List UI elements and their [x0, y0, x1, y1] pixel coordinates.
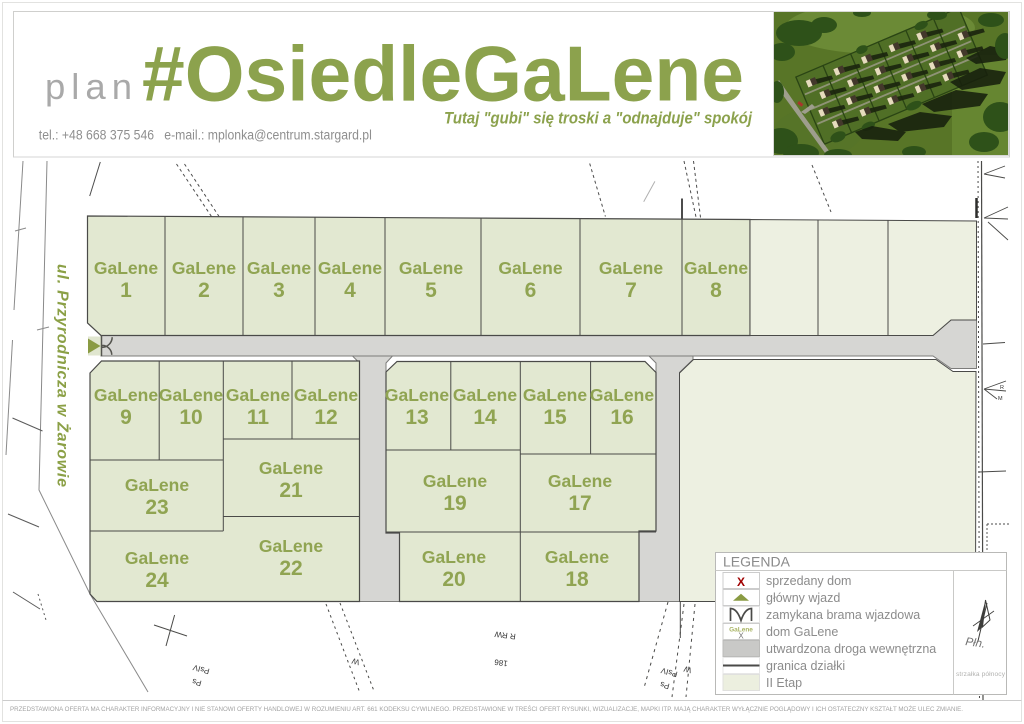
svg-text:11: 11 — [247, 406, 270, 429]
svg-text:dom GaLene: dom GaLene — [766, 625, 838, 639]
svg-text:GaLene: GaLene — [423, 471, 487, 491]
svg-text:GaLene: GaLene — [548, 471, 612, 491]
svg-text:GaLene: GaLene — [385, 385, 449, 405]
svg-text:strzałka północy: strzałka północy — [956, 671, 1006, 678]
svg-text:5: 5 — [425, 279, 437, 302]
svg-text:23: 23 — [145, 496, 168, 519]
svg-text:4: 4 — [344, 279, 356, 302]
svg-text:GaLene: GaLene — [172, 258, 236, 278]
svg-text:GaLene: GaLene — [94, 258, 158, 278]
svg-text:GaLene: GaLene — [399, 258, 463, 278]
svg-text:granica działki: granica działki — [766, 659, 845, 673]
svg-text:20: 20 — [442, 568, 465, 591]
svg-text:GaLene: GaLene — [94, 385, 158, 405]
svg-text:19: 19 — [443, 492, 466, 515]
svg-text:II Etap: II Etap — [766, 676, 802, 690]
svg-text:PRZEDSTAWIONA OFERTA MA CHARAK: PRZEDSTAWIONA OFERTA MA CHARAKTER INFORM… — [10, 704, 963, 713]
svg-text:plan: plan — [45, 66, 132, 107]
svg-text:3: 3 — [273, 279, 285, 302]
svg-text:7: 7 — [625, 279, 637, 302]
svg-text:14: 14 — [473, 406, 497, 429]
svg-text:GaLene: GaLene — [259, 536, 323, 556]
svg-text:GaLene: GaLene — [159, 385, 223, 405]
svg-text:GaLene: GaLene — [684, 258, 748, 278]
svg-text:GaLene: GaLene — [259, 458, 323, 478]
svg-text:zamykana brama wjazdowa: zamykana brama wjazdowa — [766, 608, 920, 622]
svg-text:1: 1 — [120, 279, 132, 302]
svg-text:M: M — [998, 396, 1003, 402]
svg-text:GaLene: GaLene — [318, 258, 382, 278]
svg-text:główny wjazd: główny wjazd — [766, 591, 840, 605]
svg-text:GaLene: GaLene — [498, 258, 562, 278]
svg-text:LEGENDA: LEGENDA — [723, 554, 791, 570]
svg-text:9: 9 — [120, 406, 132, 429]
svg-text:GaLene: GaLene — [523, 385, 587, 405]
svg-text:utwardzona droga wewnętrzna: utwardzona droga wewnętrzna — [766, 642, 936, 656]
svg-text:21: 21 — [279, 479, 303, 502]
svg-text:15: 15 — [543, 406, 567, 429]
svg-text:#OsiedleGaLene: #OsiedleGaLene — [142, 30, 744, 118]
svg-text:ul. Przyrodnicza w Żarowie: ul. Przyrodnicza w Żarowie — [54, 264, 72, 487]
svg-text:18: 18 — [565, 568, 589, 591]
svg-text:GaLene: GaLene — [226, 385, 290, 405]
svg-text:12: 12 — [314, 406, 337, 429]
svg-text:GaLene: GaLene — [453, 385, 517, 405]
svg-text:GaLene: GaLene — [125, 475, 189, 495]
svg-text:GaLene: GaLene — [422, 547, 486, 567]
svg-text:13: 13 — [405, 406, 428, 429]
svg-text:6: 6 — [525, 279, 537, 302]
svg-text:GaLene: GaLene — [599, 258, 663, 278]
svg-text:GaLene: GaLene — [247, 258, 311, 278]
svg-text:GaLene: GaLene — [125, 548, 189, 568]
svg-text:10: 10 — [179, 406, 202, 429]
svg-text:17: 17 — [568, 492, 591, 515]
svg-text:22: 22 — [279, 557, 302, 580]
svg-text:sprzedany dom: sprzedany dom — [766, 574, 851, 588]
svg-text:GaLene: GaLene — [545, 547, 609, 567]
svg-text:8: 8 — [710, 279, 722, 302]
svg-text:16: 16 — [610, 406, 633, 429]
svg-text:2: 2 — [198, 279, 210, 302]
svg-text:24: 24 — [145, 569, 169, 592]
svg-text:X: X — [737, 575, 745, 589]
svg-text:GaLene: GaLene — [590, 385, 654, 405]
svg-text:GaLene: GaLene — [294, 385, 358, 405]
svg-text:Tutaj "gubi" się troski a "odn: Tutaj "gubi" się troski a "odnajduje" sp… — [444, 110, 752, 128]
svg-text:X: X — [738, 632, 744, 641]
svg-text:R: R — [1000, 385, 1004, 391]
svg-text:tel.: +48 668 375 546 e-mail: tel.: +48 668 375 546 e-mail.: mplonka@c… — [39, 128, 372, 143]
svg-text:186: 186 — [493, 657, 508, 668]
